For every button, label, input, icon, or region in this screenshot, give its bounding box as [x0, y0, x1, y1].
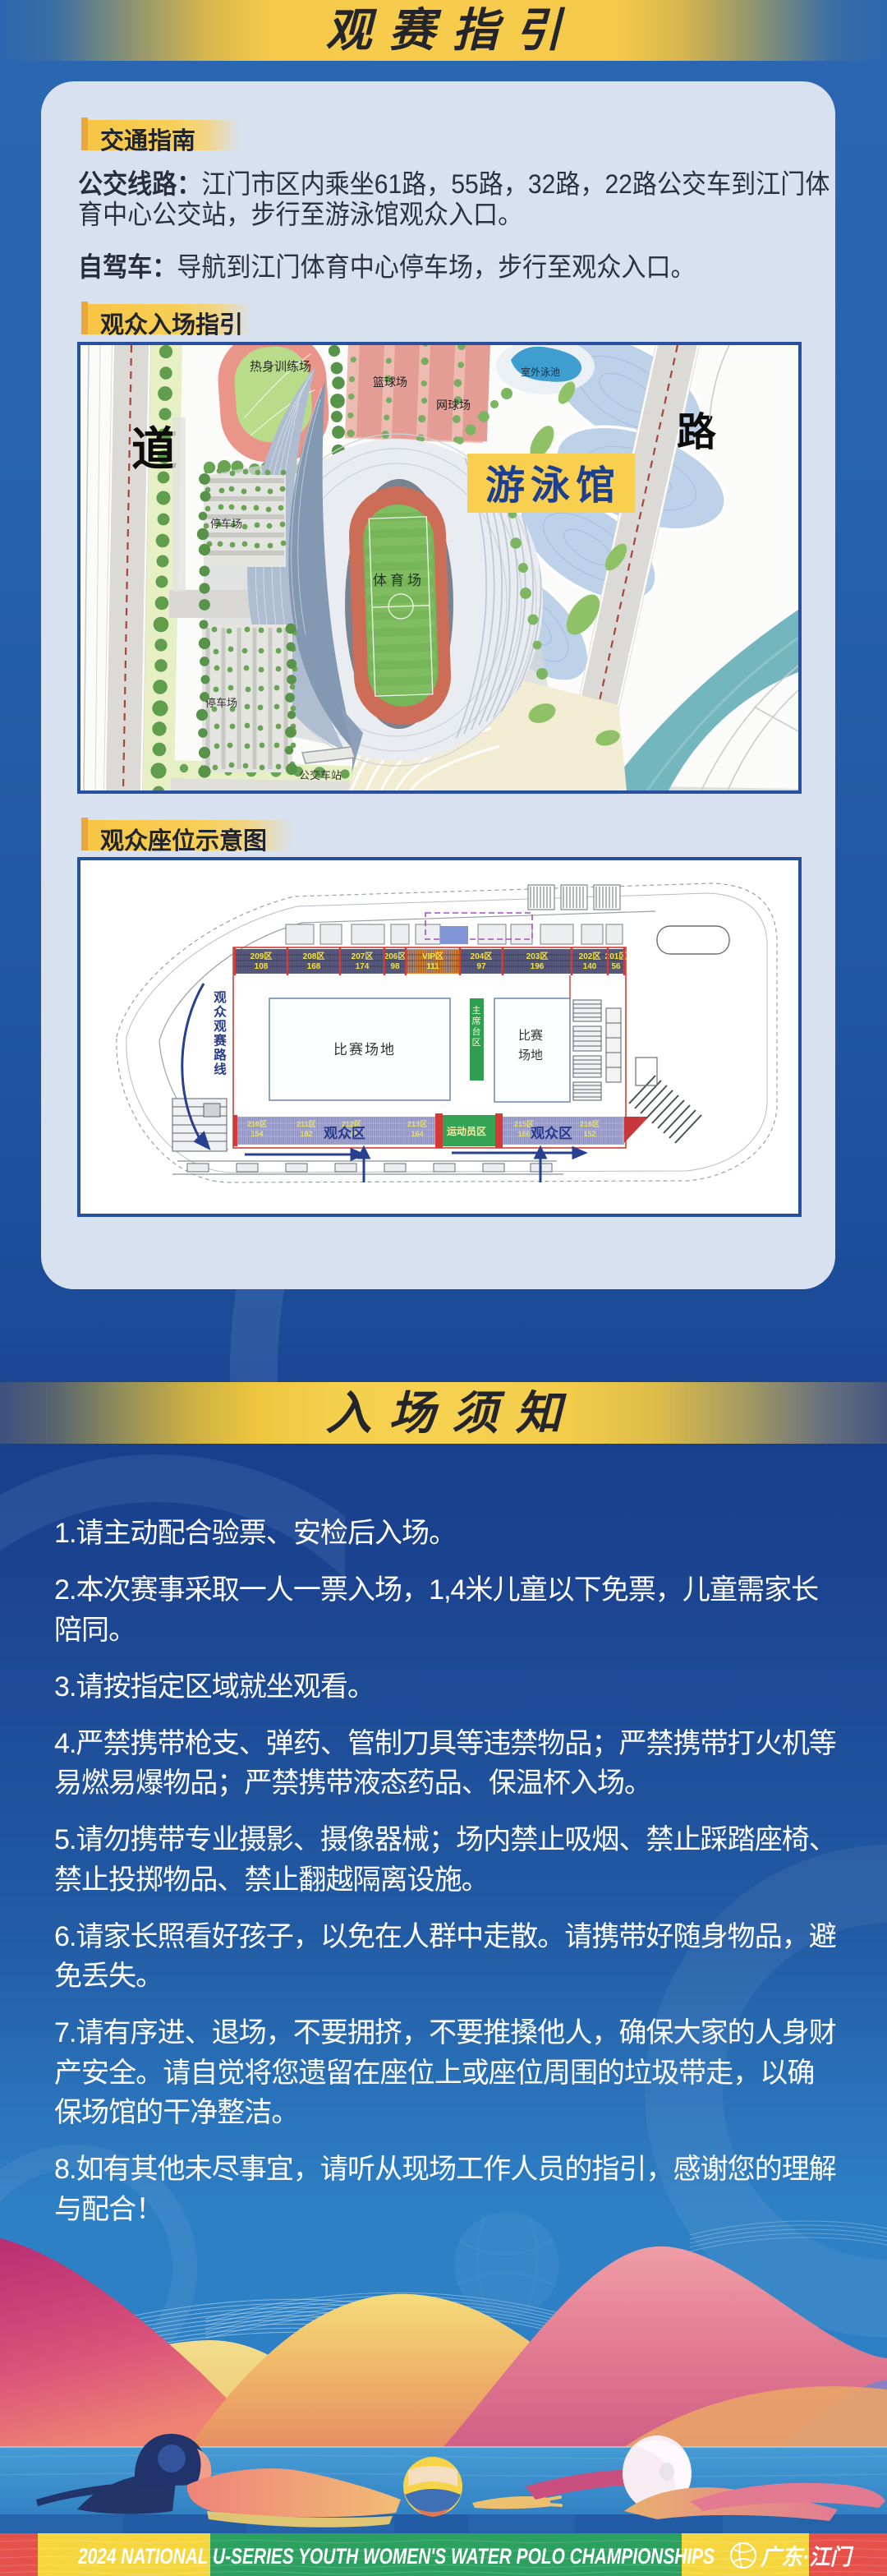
svg-text:202区: 202区	[579, 952, 601, 961]
svg-text:108: 108	[255, 962, 269, 971]
svg-text:152: 152	[583, 1130, 595, 1138]
svg-text:164: 164	[411, 1130, 423, 1138]
svg-text:停车场: 停车场	[205, 697, 237, 709]
svg-text:游泳馆: 游泳馆	[485, 464, 621, 508]
svg-text:观众区: 观众区	[530, 1125, 572, 1141]
svg-text:154: 154	[250, 1130, 263, 1138]
svg-text:室外泳池: 室外泳池	[521, 366, 560, 378]
svg-text:97: 97	[476, 962, 486, 971]
svg-text:186: 186	[517, 1130, 530, 1138]
svg-text:体育场: 体育场	[373, 573, 425, 588]
svg-text:209区: 209区	[250, 952, 273, 961]
svg-text:182: 182	[300, 1130, 312, 1138]
svg-text:140: 140	[583, 962, 597, 971]
svg-text:比赛: 比赛	[518, 1029, 543, 1043]
svg-text:204区: 204区	[471, 952, 493, 961]
svg-text:211区: 211区	[296, 1120, 316, 1128]
svg-text:196: 196	[531, 962, 545, 971]
svg-text:VIP区: VIP区	[422, 952, 443, 961]
svg-text:56: 56	[611, 962, 621, 971]
svg-text:热身训练场: 热身训练场	[250, 360, 311, 374]
svg-text:篮球场: 篮球场	[373, 376, 407, 389]
svg-text:210区: 210区	[247, 1120, 267, 1128]
svg-text:观众观赛路线: 观众观赛路线	[213, 990, 227, 1077]
svg-text:比赛场地: 比赛场地	[333, 1041, 396, 1058]
svg-text:207区: 207区	[352, 952, 374, 961]
svg-text:208区: 208区	[303, 952, 325, 961]
svg-text:观众区: 观众区	[323, 1125, 365, 1141]
svg-text:运动员区: 运动员区	[447, 1126, 486, 1137]
svg-text:道: 道	[131, 425, 177, 476]
svg-text:广东·江门: 广东·江门	[761, 2545, 854, 2569]
svg-text:2024 NATIONAL U-SERIES YOUTH W: 2024 NATIONAL U-SERIES YOUTH WOMEN'S WAT…	[77, 2544, 715, 2569]
svg-text:公交车站: 公交车站	[299, 769, 342, 781]
svg-text:203区: 203区	[526, 952, 549, 961]
svg-text:174: 174	[356, 962, 370, 971]
svg-text:场地: 场地	[518, 1048, 543, 1062]
svg-text:路: 路	[677, 411, 717, 454]
svg-text:98: 98	[390, 962, 400, 971]
svg-text:216区: 216区	[580, 1120, 600, 1128]
svg-text:网球场: 网球场	[436, 399, 471, 412]
svg-text:168: 168	[307, 962, 321, 971]
svg-text:停车场: 停车场	[210, 518, 242, 530]
svg-text:206区: 206区	[384, 952, 407, 961]
svg-text:111: 111	[426, 962, 439, 971]
svg-text:213区: 213区	[407, 1120, 427, 1128]
